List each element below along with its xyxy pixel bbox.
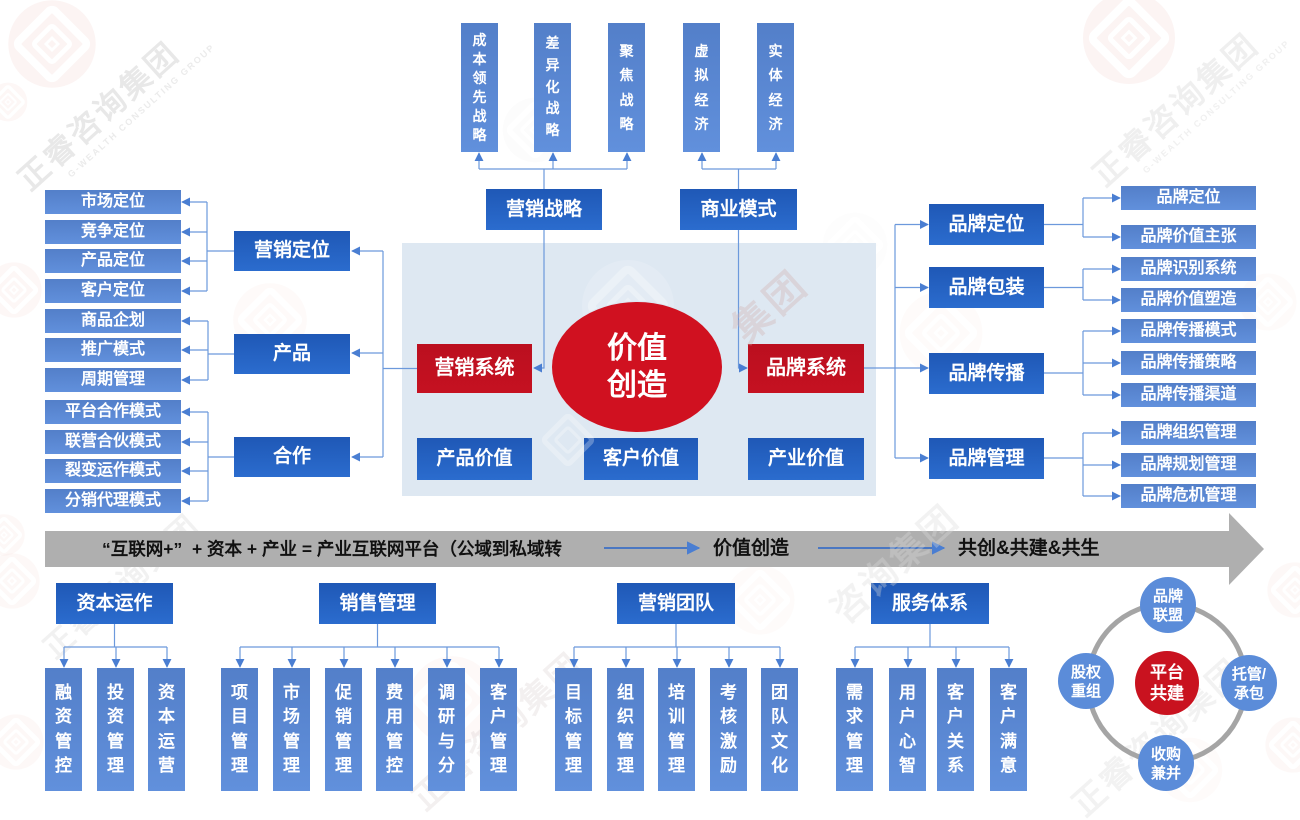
svg-text:咨询集团: 咨询集团 (823, 496, 966, 631)
svg-text:集团: 集团 (724, 262, 817, 352)
